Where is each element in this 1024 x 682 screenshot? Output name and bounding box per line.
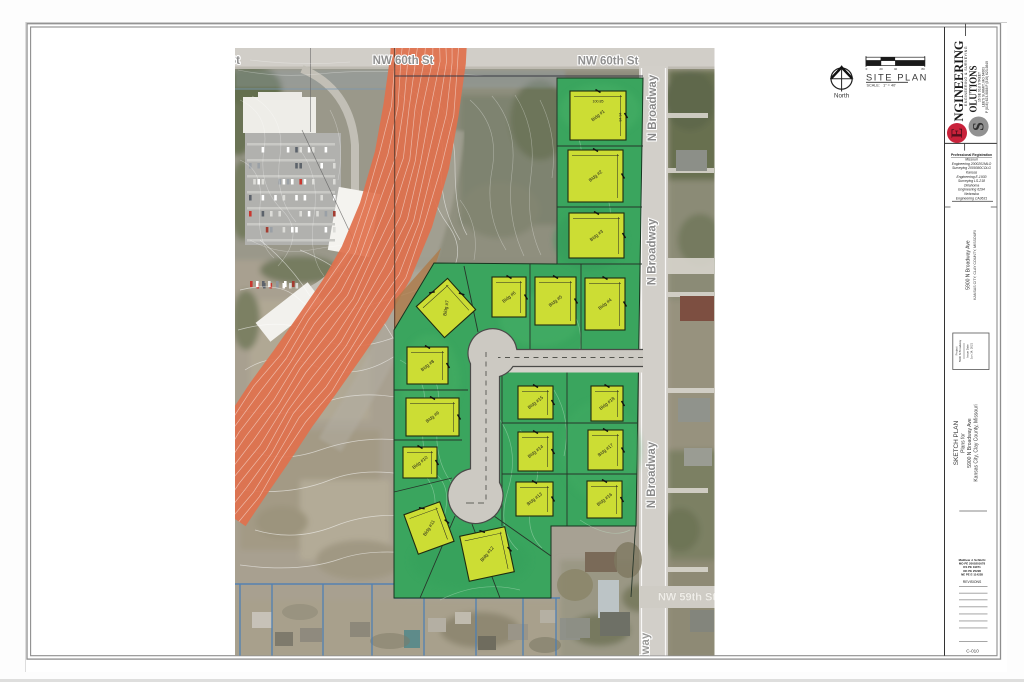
svg-text:100.85: 100.85: [593, 100, 604, 104]
svg-text:5900 N Broadway Ave: 5900 N Broadway Ave: [966, 240, 972, 290]
svg-text:Kansas City, Clay County, Miss: Kansas City, Clay County, Missouri: [974, 404, 980, 481]
svg-text:Professional Registration: Professional Registration: [951, 153, 992, 157]
svg-text:SKETCH PLAN: SKETCH PLAN: [953, 420, 960, 465]
svg-text:Engineering CA3631: Engineering CA3631: [956, 196, 987, 200]
svg-text:E: E: [949, 128, 966, 138]
svg-text:80: 80: [921, 67, 925, 71]
svg-text:5900 N Broadway Ave: 5900 N Broadway Ave: [967, 418, 973, 468]
svg-text:Plans for: Plans for: [961, 433, 967, 453]
svg-text:S: S: [971, 122, 988, 131]
svg-text:P (816) 623-9888 F (816) 623-9: P (816) 623-9888 F (816) 623-9849: [985, 61, 989, 113]
svg-text:KANSAS CITY, CLAY COUNTY, MISS: KANSAS CITY, CLAY COUNTY, MISSOURI: [973, 230, 977, 300]
svg-text:C-010: C-010: [966, 649, 979, 654]
svg-text:N Broadway: N Broadway: [647, 74, 659, 141]
svg-text:Jun 14, 2021: Jun 14, 2021: [969, 342, 973, 359]
svg-text:NW 60th St: NW 60th St: [373, 55, 434, 67]
svg-text:5900 N Broadway: 5900 N Broadway: [958, 339, 962, 362]
svg-text:SCALE: 1" = 40': SCALE: 1" = 40': [867, 83, 897, 87]
svg-text:ENGINEERING & SURVEYING: ENGINEERING & SURVEYING: [964, 46, 968, 106]
svg-text:20: 20: [879, 67, 883, 71]
svg-text:North: North: [834, 93, 850, 100]
svg-text:N Broadway: N Broadway: [646, 441, 658, 508]
svg-text:N Broadway: N Broadway: [647, 218, 659, 285]
svg-text:REVISIONS: REVISIONS: [963, 580, 982, 584]
svg-text:NW 59th St: NW 59th St: [658, 592, 716, 604]
svg-text:SITE PLAN: SITE PLAN: [866, 73, 928, 83]
svg-text:NW 60th St: NW 60th St: [578, 56, 639, 68]
svg-text:NE PE E-114228: NE PE E-114228: [961, 572, 983, 576]
svg-text:84.94: 84.94: [619, 113, 623, 122]
svg-text:40: 40: [894, 67, 898, 71]
